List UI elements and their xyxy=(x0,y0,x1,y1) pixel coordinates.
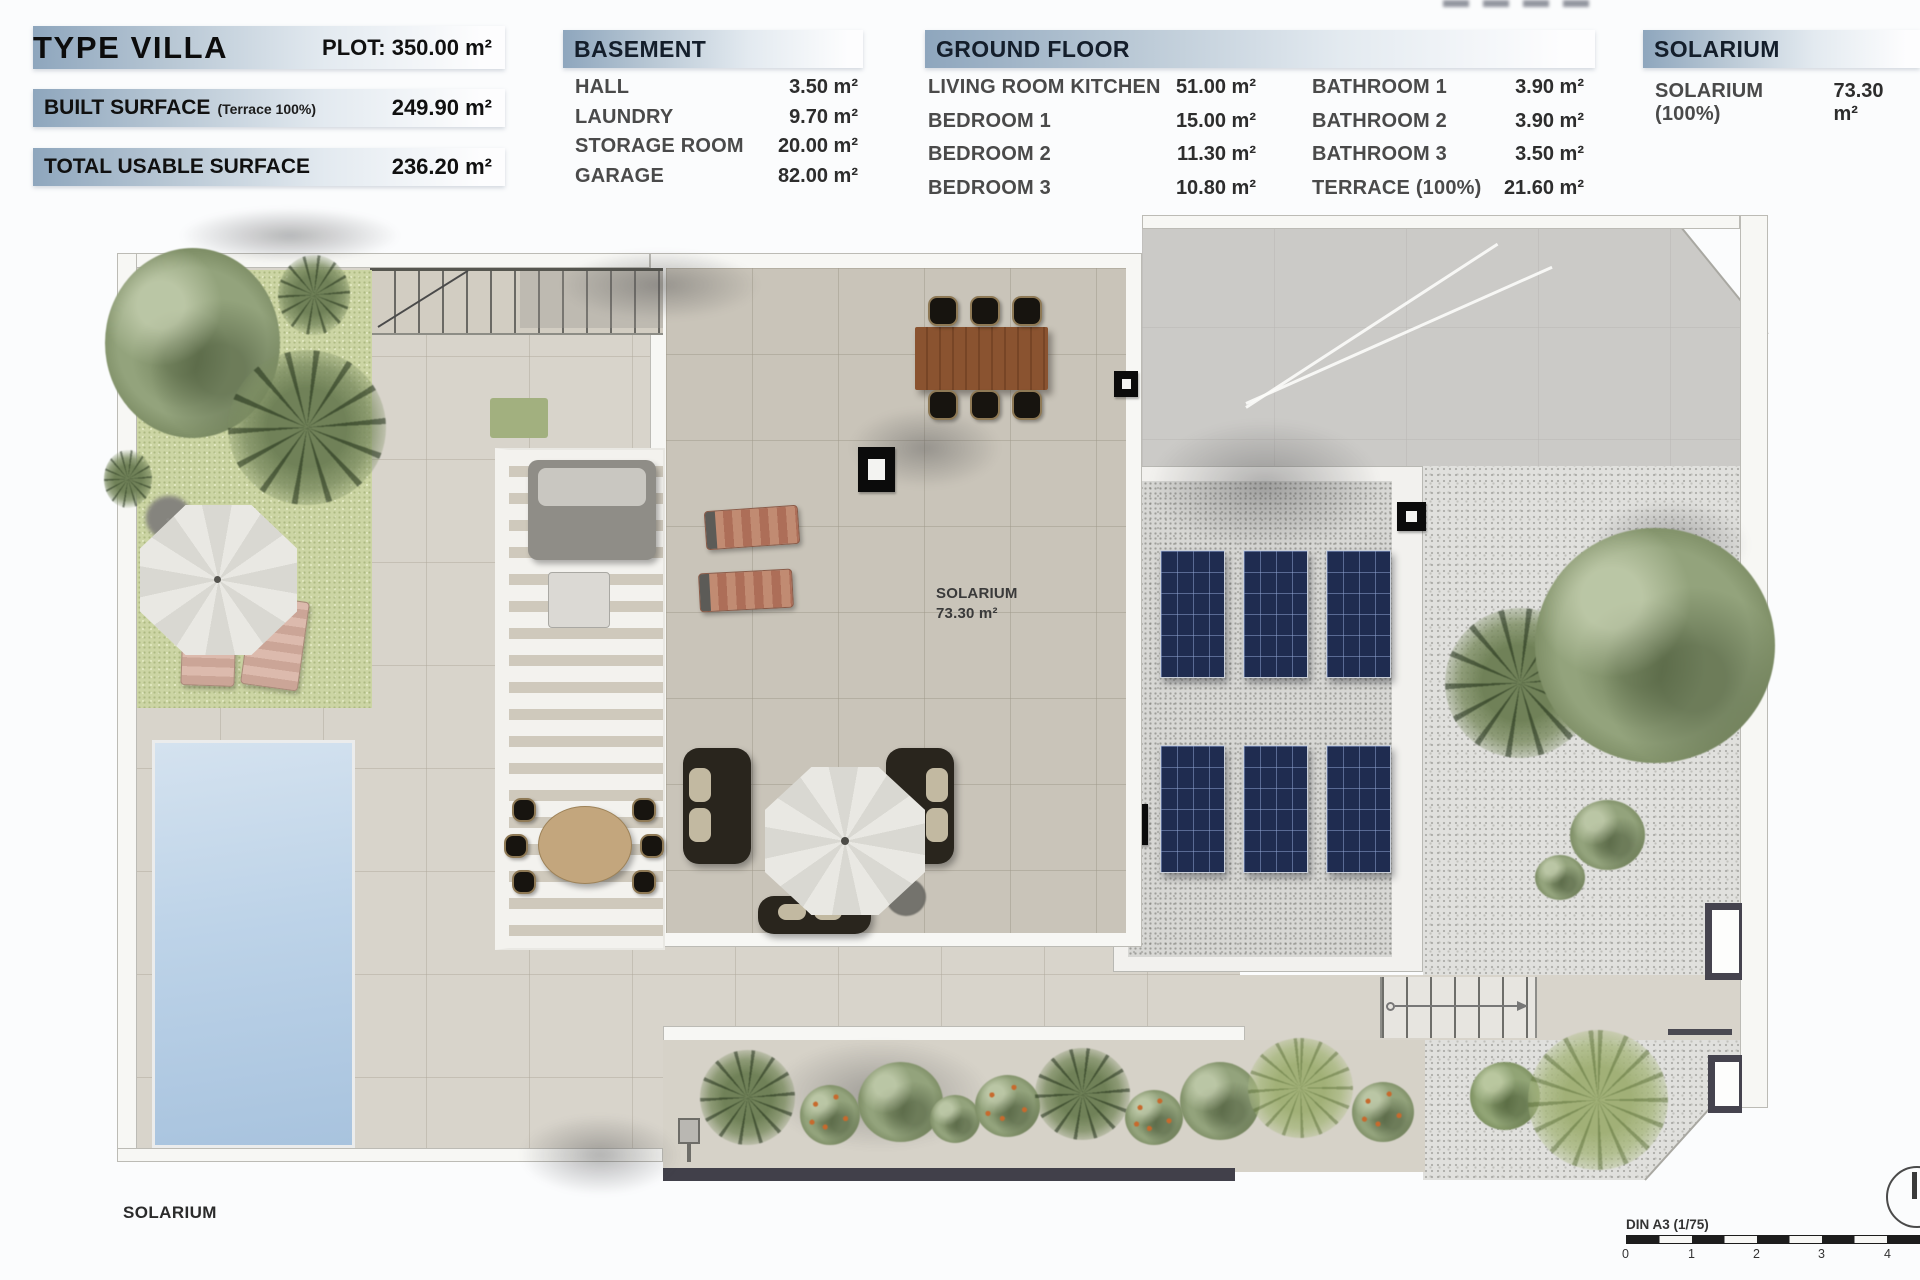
palm-tree xyxy=(700,1050,795,1145)
sofa-cushion xyxy=(926,768,948,802)
skylight-glass xyxy=(1406,511,1417,522)
scale-tick: 3 xyxy=(1818,1247,1825,1261)
garden-chair xyxy=(504,834,528,858)
sofa-cushion xyxy=(778,904,806,920)
room-area: 73.30 m² xyxy=(936,604,1018,624)
floor-label: SOLARIUM xyxy=(123,1203,217,1223)
orange-tree xyxy=(800,1085,860,1145)
yucca-plant xyxy=(1528,1030,1668,1170)
sofa xyxy=(683,748,751,864)
swimming-pool xyxy=(152,740,355,1148)
small-plant xyxy=(104,450,152,508)
room-name: SOLARIUM xyxy=(936,584,1018,604)
garden-chair xyxy=(512,870,536,894)
hedge xyxy=(490,398,548,438)
floor-plan-sheet: { "summary": { "title": "TYPE VILLA", "p… xyxy=(0,0,1920,1280)
scale-bar xyxy=(1626,1235,1920,1244)
door-opening xyxy=(1705,903,1742,980)
daybed-pillow xyxy=(538,468,646,506)
palm-tree xyxy=(228,350,386,505)
scale-label: DIN A3 (1/75) xyxy=(1626,1217,1709,1232)
shrub xyxy=(858,1062,943,1142)
dining-table xyxy=(915,327,1048,390)
scale-tick: 1 xyxy=(1688,1247,1695,1261)
solar-panel xyxy=(1243,745,1308,873)
floor-plan: SOLARIUM 73.30 m² xyxy=(0,0,1920,1280)
scale-tick: 0 xyxy=(1622,1247,1629,1261)
solar-panel xyxy=(1326,745,1391,873)
dining-chair xyxy=(970,390,1000,420)
lounger-headrest xyxy=(705,512,718,550)
top-wall-right xyxy=(1142,215,1740,229)
solar-panel xyxy=(1243,550,1308,678)
scale-tick: 2 xyxy=(1753,1247,1760,1261)
sofa-cushion xyxy=(689,768,711,802)
garden-chair xyxy=(632,870,656,894)
sofa-cushion xyxy=(926,808,948,842)
sun-lounger xyxy=(698,569,794,613)
shrub xyxy=(1535,855,1585,900)
umbrella-hub xyxy=(841,837,849,845)
palm-tree xyxy=(1035,1048,1130,1140)
fan-palm xyxy=(278,255,350,335)
shadow-smudge xyxy=(1150,420,1380,550)
compass-needle xyxy=(1912,1172,1917,1199)
orange-tree xyxy=(1352,1082,1414,1142)
door-opening xyxy=(1708,1055,1742,1113)
skylight-glass xyxy=(1122,379,1131,389)
lounger-headrest xyxy=(699,574,711,611)
grass-plant xyxy=(1248,1038,1353,1138)
shrub xyxy=(930,1095,980,1143)
side-table xyxy=(548,572,610,628)
garden-chair xyxy=(632,798,656,822)
skylight-marker xyxy=(1397,502,1426,531)
sun-lounger xyxy=(704,505,800,550)
dining-chair xyxy=(970,296,1000,326)
shower-post xyxy=(687,1144,691,1162)
solar-panel xyxy=(1160,550,1225,678)
stairs-arrow xyxy=(1395,1005,1517,1007)
shrub xyxy=(1180,1062,1260,1140)
shrub xyxy=(1570,800,1645,870)
boundary-wall xyxy=(663,1168,1235,1181)
large-tree xyxy=(1535,528,1775,763)
orange-tree xyxy=(1125,1090,1183,1145)
orange-tree xyxy=(975,1075,1040,1137)
stairs-arrowhead xyxy=(1517,1001,1528,1011)
daybed xyxy=(528,460,656,560)
garden-chair xyxy=(512,798,536,822)
skylight-marker xyxy=(858,447,895,492)
skylight-glass xyxy=(868,459,885,480)
skylight-marker xyxy=(1114,371,1138,397)
shadow-smudge xyxy=(520,1115,680,1195)
parasol-hub xyxy=(214,576,221,583)
dining-chair xyxy=(928,296,958,326)
sofa-cushion xyxy=(689,808,711,842)
garden-chair xyxy=(640,834,664,858)
garden-dining-table xyxy=(538,806,632,884)
dining-chair xyxy=(1012,390,1042,420)
stairs-bottom xyxy=(1380,977,1537,1038)
solar-panel xyxy=(1326,550,1391,678)
dining-chair xyxy=(928,390,958,420)
outdoor-shower xyxy=(678,1118,700,1144)
solar-panel xyxy=(1160,745,1225,873)
scale-tick: 4 xyxy=(1884,1247,1891,1261)
door-threshold xyxy=(1668,1029,1732,1035)
room-label: SOLARIUM 73.30 m² xyxy=(936,584,1018,623)
shadow-smudge xyxy=(560,250,760,320)
dining-chair xyxy=(1012,296,1042,326)
stairs-arrow-start xyxy=(1386,1002,1395,1011)
